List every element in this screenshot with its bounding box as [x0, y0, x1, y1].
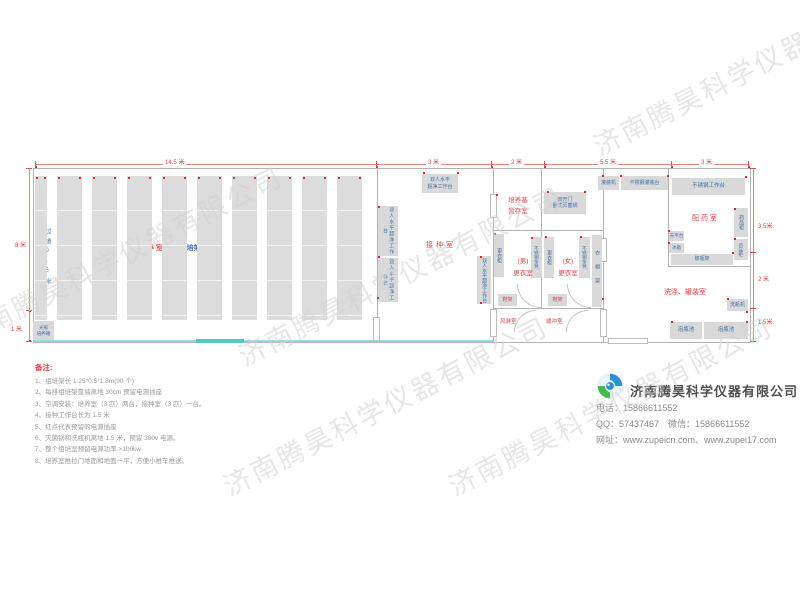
power-outlet-dot	[44, 177, 46, 179]
culture-rack	[92, 176, 117, 320]
company-qq-wechat: QQ：57437467 微信：15866611552	[596, 417, 749, 430]
light-incubator: 光照 培养箱	[33, 321, 54, 340]
power-outlet-dot	[378, 256, 380, 258]
floorplan-drawing: 14.5 米 3 米 2 米 5.5 米 3 米 8 米 1 米 3.5米 2 …	[0, 0, 800, 600]
light-incubator-label: 培养箱	[37, 331, 51, 337]
filling-table: 不锈钢灌装台	[621, 176, 668, 190]
power-outlet-dot	[746, 321, 748, 323]
balance-table: 天平台	[669, 231, 684, 241]
power-outlet-dot	[128, 177, 130, 179]
culture-rack	[57, 176, 82, 320]
clean-bench-left-2: 双人水平超净工作台	[378, 258, 398, 302]
power-outlet-dot	[496, 194, 498, 196]
room-label-medium-storage: 培养基 暂存室	[498, 195, 538, 217]
room-label-male-changing: (男) 更衣室	[508, 256, 538, 280]
power-outlet-dot	[668, 230, 670, 232]
dimension-tick	[491, 161, 492, 167]
dimension-tick	[748, 161, 749, 167]
power-outlet-dot	[338, 177, 340, 179]
power-outlet-dot	[149, 177, 151, 179]
power-outlet-dot	[324, 177, 326, 179]
door	[373, 317, 380, 341]
dim-label-top-4: 5.5 米	[598, 160, 618, 166]
room-label-inoculation: 接种室	[426, 241, 456, 252]
power-outlet-dot	[219, 177, 221, 179]
dim-label-right-3: 1.5米	[756, 320, 774, 326]
notes-title: 备注:	[35, 362, 335, 373]
note-item-7: 7、整个组培室预留电源功率 >100kw	[35, 444, 335, 455]
power-outlet-dot	[198, 177, 200, 179]
door	[600, 309, 607, 337]
note-item-4: 4、接种工作台长为 1.5 米	[35, 410, 335, 421]
ss-worktable: 不锈钢工作台	[672, 178, 745, 195]
power-outlet-dot	[727, 298, 729, 300]
power-outlet-dot	[584, 191, 586, 193]
clean-bench-left-1: 双人水平超净工作台	[378, 206, 398, 256]
dimension-tick	[35, 161, 36, 167]
dimension-tick	[750, 341, 756, 342]
watermark-text: 济南腾昊科学仪器有限公司	[586, 0, 800, 164]
power-outlet-dot	[58, 177, 60, 179]
dim-label-top-3: 2 米	[509, 160, 524, 166]
room-label-medium-l1: 培养基	[508, 197, 528, 204]
door	[490, 194, 497, 218]
power-outlet-dot	[734, 208, 736, 210]
notes-block: 备注: 1、组培架长 1.25*0.5*1.8m(90 个) 2、每排组培架靠墙…	[35, 362, 335, 467]
power-outlet-dot	[547, 191, 549, 193]
power-outlet-dot	[93, 177, 95, 179]
power-outlet-dot	[732, 252, 734, 254]
plan-area: 14.5 米 3 米 2 米 5.5 米 3 米 8 米 1 米 3.5米 2 …	[0, 0, 800, 600]
door	[608, 338, 648, 344]
power-outlet-dot	[602, 298, 604, 300]
power-outlet-dot	[114, 177, 116, 179]
note-item-5: 5、红点代表预留的电源插座	[35, 422, 335, 433]
company-websites: 网址：www.zupeicn.com、www.zupei17.com	[596, 433, 777, 446]
company-phone: 电话：15866611552	[596, 401, 677, 414]
dim-label-top-1: 14.5 米	[163, 160, 186, 166]
culture-rack	[162, 176, 187, 320]
power-outlet-dot	[668, 242, 670, 244]
shoe-rack-male: 鞋架	[498, 294, 517, 306]
dimension-line	[29, 168, 30, 342]
power-outlet-dot	[602, 175, 604, 177]
power-outlet-dot	[480, 302, 482, 304]
power-outlet-dot	[79, 177, 81, 179]
room-label-buffer: 缓冲室	[546, 318, 563, 326]
power-outlet-dot	[378, 206, 380, 208]
clean-bench-top: 双人水平 超净工作台	[422, 174, 458, 193]
glass-wall	[34, 340, 493, 342]
power-outlet-dot	[303, 177, 305, 179]
power-outlet-dot	[667, 175, 669, 177]
soak-pool-1: 泡瓶池	[670, 322, 702, 339]
company-logo-icon	[596, 372, 624, 400]
dimension-tick	[750, 252, 756, 253]
room-label-female-name: 更衣室	[558, 270, 578, 277]
bottle-rack: 玻瓶架	[671, 254, 733, 265]
power-outlet-dot	[457, 172, 459, 174]
power-outlet-dot	[377, 297, 379, 299]
note-item-1: 1、组培架长 1.25*0.5*1.8m(90 个)	[35, 376, 335, 387]
dimension-tick	[26, 341, 32, 342]
dimension-tick	[671, 161, 672, 167]
autoclave-label: 卧式灭菌锅	[552, 203, 577, 209]
room-label-female-tag: (女)	[563, 258, 574, 265]
coat-rack: 衣帽架	[592, 235, 602, 307]
room-label-air-shower: 风淋室	[500, 318, 517, 326]
power-outlet-dot	[620, 175, 622, 177]
medicine-cabinet-2: 药品柜	[734, 239, 748, 260]
power-outlet-dot	[289, 177, 291, 179]
company-name: 济南腾昊科学仪器有限公司	[630, 381, 798, 400]
dim-label-top-5: 3 米	[699, 160, 714, 166]
culture-rack	[197, 176, 222, 320]
dimension-line	[753, 168, 754, 342]
room-label-male-tag: (男)	[518, 258, 529, 265]
door	[490, 309, 497, 337]
room-label-female-changing: (女) 更衣室	[553, 256, 583, 280]
power-outlet-dot	[531, 237, 533, 239]
wall	[493, 230, 603, 231]
culture-rack	[267, 176, 292, 320]
power-outlet-dot	[545, 236, 547, 238]
power-outlet-dot	[163, 177, 165, 179]
power-outlet-dot	[233, 177, 235, 179]
power-outlet-dot	[746, 311, 748, 313]
culture-rack	[337, 176, 362, 320]
room-label-washing: 洗涤、罐装室	[664, 288, 706, 299]
dimension-tick	[26, 168, 32, 169]
sliding-door	[196, 339, 244, 343]
dim-label-right-2: 2 米	[756, 277, 771, 283]
power-outlet-dot	[494, 233, 496, 235]
bottle-washer: 洗瓶机	[727, 299, 748, 311]
dimension-tick	[26, 310, 32, 311]
dim-label-top-2: 3 米	[426, 160, 441, 166]
power-outlet-dot	[480, 256, 482, 258]
dim-label-left-1: 8 米	[13, 243, 28, 249]
note-item-3: 3、空调安装：培养室（3 匹）两台，接种室（3 匹）一台。	[35, 399, 335, 410]
room-label-male-name: 更衣室	[513, 270, 533, 277]
wall	[493, 308, 603, 309]
power-outlet-dot	[184, 177, 186, 179]
locker-male: 更衣柜	[494, 234, 504, 277]
note-item-2: 2、每排组培架靠墙离地 30cm 预留电源插座	[35, 387, 335, 398]
note-item-8: 8、培养室推拉门地面和地面一平，方便小推车推送。	[35, 456, 335, 467]
dimension-tick	[544, 161, 545, 167]
power-outlet-dot	[423, 172, 425, 174]
power-outlet-dot	[359, 177, 361, 179]
clean-bench-right: 双人水平超净工作台	[477, 256, 491, 304]
dimension-tick	[376, 161, 377, 167]
medicine-cabinet-1: 药品柜	[734, 208, 748, 237]
power-outlet-dot	[671, 321, 673, 323]
dim-label-right-1: 3.5米	[756, 224, 774, 230]
power-outlet-dot	[268, 177, 270, 179]
culture-rack	[35, 176, 47, 320]
room-label-medium-l2: 暂存室	[508, 208, 528, 215]
wall	[668, 266, 750, 267]
dimension-tick	[750, 168, 756, 169]
clean-bench-label: 超净工作台	[427, 184, 452, 190]
power-outlet-dot	[745, 176, 747, 178]
soak-pool-2: 泡瓶池	[704, 322, 748, 339]
culture-rack	[127, 176, 152, 320]
filling-machine: 灌装机	[598, 176, 619, 190]
room-label-dispensing: 配 药 室	[692, 214, 717, 225]
fridge: 冰箱	[669, 243, 684, 253]
power-outlet-dot	[254, 177, 256, 179]
power-outlet-dot	[36, 177, 38, 179]
note-item-6: 6、灭菌锅和洗瓶机离地 1.5 米，预留 380v 电源。	[35, 433, 335, 444]
autoclave: 双开门 卧式灭菌锅	[544, 192, 586, 214]
power-outlet-dot	[580, 236, 582, 238]
dimension-line	[35, 164, 749, 165]
culture-rack	[232, 176, 257, 320]
power-outlet-dot	[734, 238, 736, 240]
dimension-tick	[750, 308, 756, 309]
culture-rack	[302, 176, 327, 320]
dim-label-left-2: 1 米	[9, 327, 24, 333]
shoe-rack-female: 鞋架	[548, 294, 567, 306]
